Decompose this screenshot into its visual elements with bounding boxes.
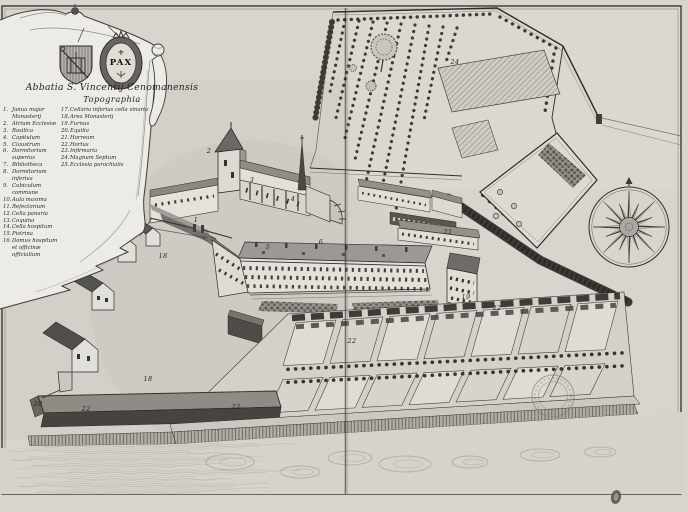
- engraving-artwork: [0, 0, 688, 512]
- engraved-abbey-map: Abbatia S. Vincentij Cenomanensis Topogr…: [0, 0, 688, 512]
- church-tower: [218, 149, 240, 193]
- drape-finial: [72, 8, 79, 15]
